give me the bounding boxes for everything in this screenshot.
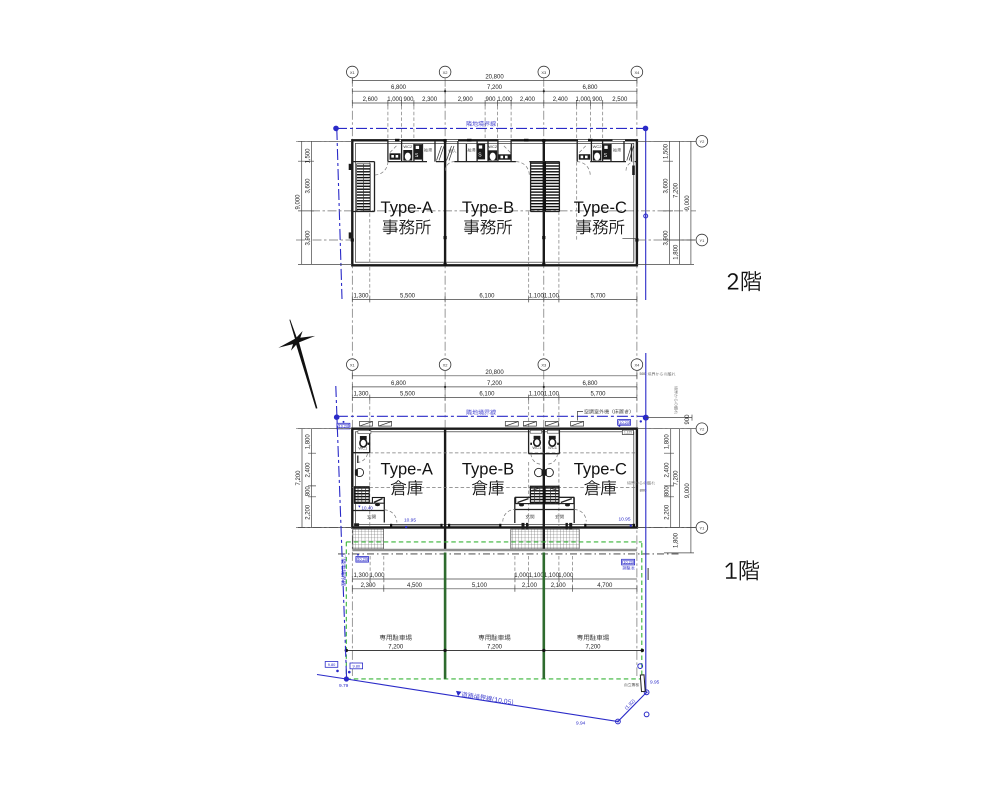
svg-text:7,200: 7,200 bbox=[487, 644, 503, 650]
svg-text:7,200: 7,200 bbox=[487, 381, 503, 387]
svg-text:WC1: WC1 bbox=[532, 445, 542, 450]
svg-text:7,200: 7,200 bbox=[673, 182, 679, 198]
svg-text:7,200: 7,200 bbox=[296, 470, 302, 486]
svg-text:1,500: 1,500 bbox=[306, 148, 312, 164]
svg-text:2,400: 2,400 bbox=[520, 97, 536, 103]
svg-text:X2: X2 bbox=[443, 70, 449, 75]
svg-text:1,300: 1,300 bbox=[353, 573, 369, 579]
svg-text:900: 900 bbox=[485, 97, 496, 103]
svg-text:20,800: 20,800 bbox=[485, 75, 504, 81]
svg-text:1,800: 1,800 bbox=[665, 434, 671, 450]
svg-text:1,300: 1,300 bbox=[353, 392, 369, 398]
svg-text:10.20: 10.20 bbox=[623, 561, 633, 565]
svg-text:1,000: 1,000 bbox=[497, 97, 513, 103]
svg-text:Type-C: Type-C bbox=[574, 461, 627, 479]
svg-text:9,000: 9,000 bbox=[685, 483, 691, 499]
svg-text:WC2: WC2 bbox=[488, 144, 498, 149]
svg-text:6,800: 6,800 bbox=[391, 85, 407, 91]
svg-text:1,800: 1,800 bbox=[673, 532, 679, 548]
svg-text:X4: X4 bbox=[634, 362, 640, 367]
svg-text:1,100: 1,100 bbox=[544, 392, 560, 398]
svg-text:1,000: 1,000 bbox=[369, 573, 385, 579]
svg-text:WC1: WC1 bbox=[358, 446, 368, 451]
svg-text:3,900: 3,900 bbox=[306, 230, 312, 246]
svg-text:7,200: 7,200 bbox=[487, 85, 503, 91]
svg-text:3,600: 3,600 bbox=[306, 178, 312, 194]
svg-text:1,100: 1,100 bbox=[529, 392, 545, 398]
svg-text:2,400: 2,400 bbox=[553, 97, 569, 103]
svg-text:9,000: 9,000 bbox=[296, 194, 302, 210]
svg-text:WC2: WC2 bbox=[403, 144, 413, 149]
svg-text:900: 900 bbox=[592, 97, 603, 103]
svg-text:2,400: 2,400 bbox=[665, 462, 671, 478]
svg-text:2,100: 2,100 bbox=[522, 583, 538, 589]
svg-text:9.94: 9.94 bbox=[576, 721, 586, 727]
svg-text:Y2: Y2 bbox=[699, 139, 705, 144]
svg-text:5,700: 5,700 bbox=[590, 392, 606, 398]
svg-text:900: 900 bbox=[403, 97, 414, 103]
svg-text:1,125: 1,125 bbox=[624, 431, 632, 435]
svg-text:Type-C: Type-C bbox=[574, 199, 627, 217]
svg-text:Type-A: Type-A bbox=[381, 199, 433, 217]
svg-text:1,100: 1,100 bbox=[529, 293, 545, 299]
svg-text:7,200: 7,200 bbox=[585, 644, 601, 650]
svg-text:5,700: 5,700 bbox=[590, 293, 606, 299]
svg-text:10.20: 10.20 bbox=[339, 424, 349, 428]
svg-text:5,100: 5,100 bbox=[472, 583, 488, 589]
svg-text:X4: X4 bbox=[634, 70, 640, 75]
svg-text:1,000: 1,000 bbox=[558, 573, 574, 579]
svg-text:10.95: 10.95 bbox=[619, 517, 631, 523]
svg-text:Type-A: Type-A bbox=[381, 461, 433, 479]
svg-text:1,500: 1,500 bbox=[664, 143, 670, 159]
svg-text:2,300: 2,300 bbox=[422, 97, 438, 103]
svg-text:20,800: 20,800 bbox=[485, 370, 504, 376]
svg-text:10.20: 10.20 bbox=[357, 558, 367, 562]
svg-text:10.95: 10.95 bbox=[404, 517, 416, 523]
svg-text:Y1: Y1 bbox=[699, 238, 705, 243]
svg-text:2,200: 2,200 bbox=[306, 504, 312, 520]
svg-text:9.79: 9.79 bbox=[339, 683, 349, 689]
svg-text:5,500: 5,500 bbox=[400, 392, 416, 398]
svg-text:1,100: 1,100 bbox=[544, 573, 560, 579]
svg-text:2,200: 2,200 bbox=[665, 504, 671, 520]
svg-text:9.80: 9.80 bbox=[328, 662, 336, 667]
svg-text:10.20: 10.20 bbox=[619, 421, 629, 425]
svg-text:3,600: 3,600 bbox=[664, 178, 670, 194]
svg-text:7,200: 7,200 bbox=[673, 470, 679, 486]
svg-text:10.40: 10.40 bbox=[362, 505, 374, 510]
svg-text:1,000: 1,000 bbox=[514, 573, 530, 579]
svg-text:9.80: 9.80 bbox=[353, 663, 361, 668]
svg-text:800: 800 bbox=[665, 486, 671, 497]
svg-text:2,100: 2,100 bbox=[551, 583, 567, 589]
svg-text:1,800: 1,800 bbox=[673, 244, 679, 260]
svg-text:2,500: 2,500 bbox=[612, 97, 628, 103]
svg-text:X2: X2 bbox=[443, 362, 449, 367]
svg-text:1,000: 1,000 bbox=[387, 97, 403, 103]
svg-text:X1: X1 bbox=[350, 70, 356, 75]
svg-text:1,100: 1,100 bbox=[544, 293, 560, 299]
svg-text:6,800: 6,800 bbox=[582, 85, 598, 91]
svg-text:6,100: 6,100 bbox=[479, 392, 495, 398]
svg-text:2,600: 2,600 bbox=[363, 97, 379, 103]
svg-text:1,000: 1,000 bbox=[575, 97, 591, 103]
svg-text:2,900: 2,900 bbox=[458, 97, 474, 103]
svg-text:Y1: Y1 bbox=[699, 525, 705, 530]
svg-text:7,200: 7,200 bbox=[388, 644, 404, 650]
svg-text:1,300: 1,300 bbox=[353, 293, 369, 299]
svg-text:Y2: Y2 bbox=[699, 427, 705, 432]
svg-text:9.95: 9.95 bbox=[650, 680, 660, 686]
svg-text:9,000: 9,000 bbox=[685, 195, 691, 211]
svg-text:2,300: 2,300 bbox=[361, 583, 377, 589]
svg-text:6,800: 6,800 bbox=[582, 381, 598, 387]
svg-text:X3: X3 bbox=[541, 362, 547, 367]
svg-text:Type-B: Type-B bbox=[462, 199, 514, 217]
svg-text:WC1: WC1 bbox=[548, 445, 558, 450]
svg-text:1,100: 1,100 bbox=[529, 573, 545, 579]
svg-text:4,500: 4,500 bbox=[407, 583, 423, 589]
svg-text:5,500: 5,500 bbox=[400, 293, 416, 299]
svg-text:WC2: WC2 bbox=[593, 144, 603, 149]
svg-text:Type-B: Type-B bbox=[462, 461, 514, 479]
svg-text:X3: X3 bbox=[541, 70, 547, 75]
svg-text:6,100: 6,100 bbox=[479, 293, 495, 299]
svg-text:800: 800 bbox=[306, 486, 312, 497]
svg-text:900: 900 bbox=[685, 414, 691, 425]
svg-text:X1: X1 bbox=[350, 362, 356, 367]
svg-text:6,800: 6,800 bbox=[391, 381, 407, 387]
svg-text:1,800: 1,800 bbox=[306, 434, 312, 450]
svg-text:4,700: 4,700 bbox=[597, 583, 613, 589]
svg-text:2,400: 2,400 bbox=[306, 462, 312, 478]
svg-text:3,900: 3,900 bbox=[664, 230, 670, 246]
